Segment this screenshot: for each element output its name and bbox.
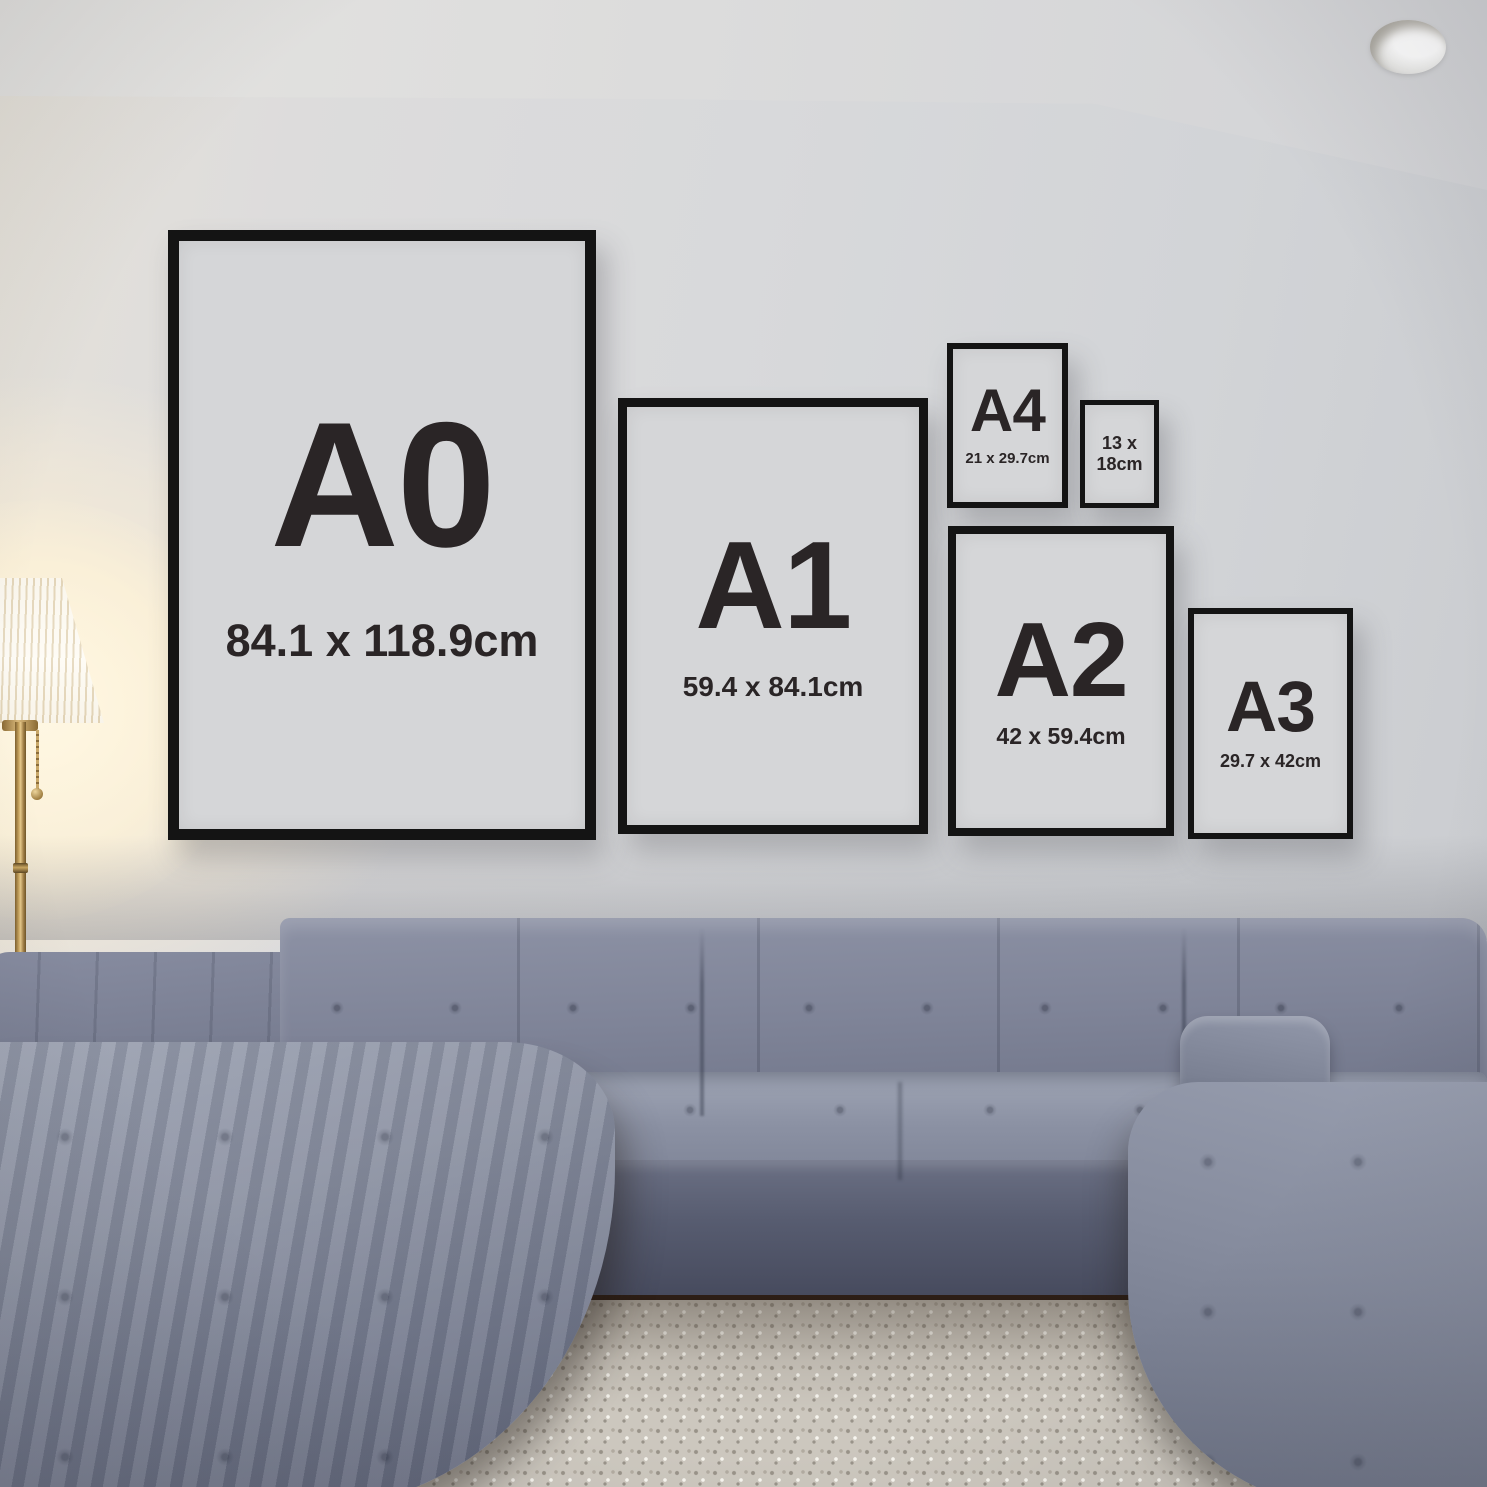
recessed-ceiling-light	[1370, 20, 1446, 74]
frame-a2: A2 42 x 59.4cm	[948, 526, 1174, 836]
frame-a2-size-label: A2	[995, 612, 1128, 710]
living-room-scene: A0 84.1 x 118.9cm A1 59.4 x 84.1cm A4 21…	[0, 0, 1487, 1487]
frame-a3-size-label: A3	[1226, 675, 1315, 740]
sofa-backrest-seam-left	[700, 928, 704, 1116]
sofa-seat-seam	[898, 1082, 902, 1180]
frame-a0-size-label: A0	[270, 403, 493, 567]
frame-13x18: 13 x 18cm	[1080, 400, 1159, 508]
frame-a3: A3 29.7 x 42cm	[1188, 608, 1353, 839]
frame-13x18-dimensions-line2: 18cm	[1096, 454, 1142, 474]
frame-a3-dimensions: 29.7 x 42cm	[1220, 751, 1321, 772]
floor-lamp-pole	[15, 722, 26, 962]
floor-lamp-pull-chain	[36, 730, 39, 790]
frame-13x18-dimensions-line1: 13 x	[1102, 433, 1137, 453]
frame-a4: A4 21 x 29.7cm	[947, 343, 1068, 508]
floor-lamp-pull-ball	[31, 788, 43, 800]
floor-lamp-pole-joint	[13, 863, 28, 873]
frame-a1: A1 59.4 x 84.1cm	[618, 398, 928, 834]
frame-a0-dimensions: 84.1 x 118.9cm	[226, 614, 539, 667]
frame-a0: A0 84.1 x 118.9cm	[168, 230, 596, 840]
sofa-right-chaise	[1128, 1082, 1487, 1487]
frame-a1-dimensions: 59.4 x 84.1cm	[683, 670, 864, 703]
frame-a2-dimensions: 42 x 59.4cm	[996, 723, 1125, 750]
frame-13x18-dimensions: 13 x 18cm	[1096, 433, 1142, 475]
frame-a4-dimensions: 21 x 29.7cm	[965, 450, 1049, 468]
ceiling	[0, 0, 1487, 210]
frame-a1-size-label: A1	[695, 529, 851, 643]
frame-a4-size-label: A4	[970, 383, 1045, 438]
